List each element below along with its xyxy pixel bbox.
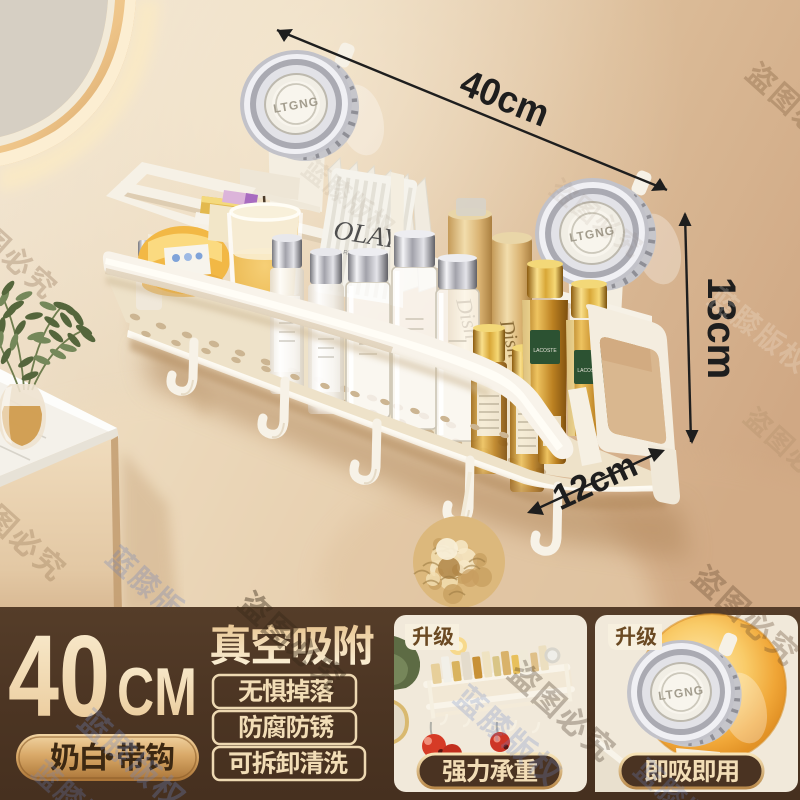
svg-text:LACOSTE: LACOSTE — [533, 348, 557, 354]
svg-text:13cm: 13cm — [699, 277, 743, 379]
svg-text:CM: CM — [117, 654, 197, 730]
